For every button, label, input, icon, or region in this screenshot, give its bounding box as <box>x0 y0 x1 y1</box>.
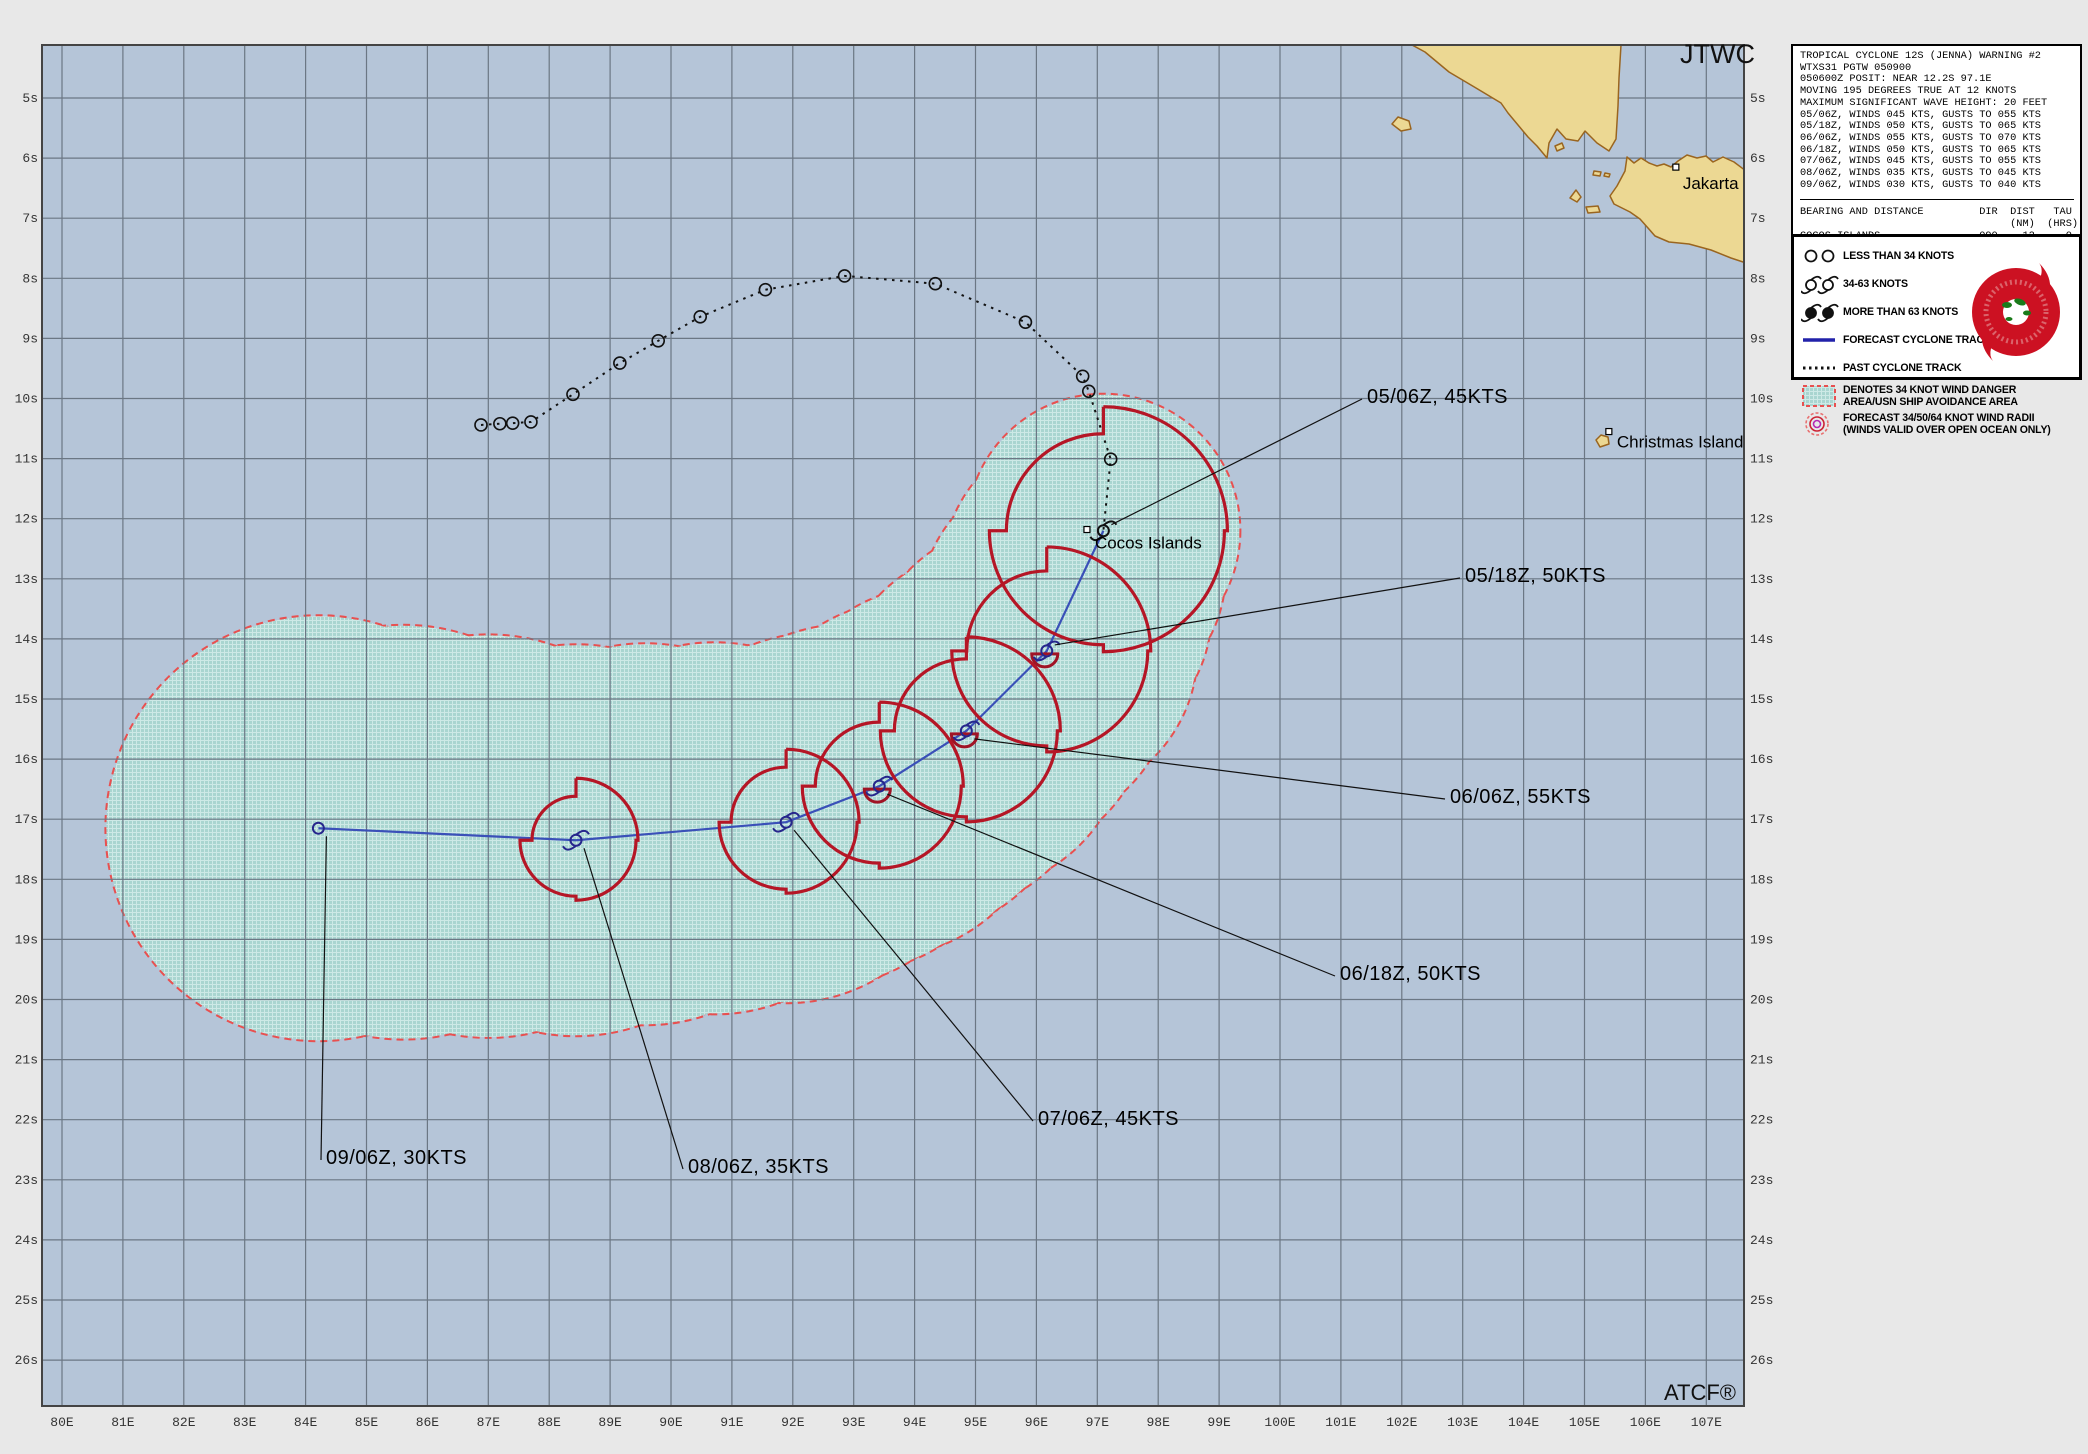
legend-label: LESS THAN 34 KNOTS <box>1843 250 1954 263</box>
lon-tick-label: 98E <box>1146 1415 1170 1430</box>
kt3463-icon <box>1801 271 1841 297</box>
forecast-point-label: 05/06Z, 45KTS <box>1367 386 1508 408</box>
legend-item: DENOTES 34 KNOT WIND DANGERAREA/USN SHIP… <box>1801 383 2075 409</box>
lon-tick-label: 101E <box>1325 1415 1356 1430</box>
lat-tick-label: 15s <box>1750 692 1773 707</box>
lon-tick-label: 91E <box>720 1415 744 1430</box>
lat-tick-label: 18s <box>1750 872 1773 887</box>
lat-tick-label: 10s <box>15 392 38 407</box>
lon-tick-label: 92E <box>781 1415 805 1430</box>
lat-tick-label: 22s <box>15 1113 38 1128</box>
lon-tick-label: 88E <box>537 1415 561 1430</box>
lon-tick-label: 89E <box>598 1415 622 1430</box>
atcf-footer: ATCF® <box>1664 1380 1736 1405</box>
lon-tick-label: 99E <box>1207 1415 1231 1430</box>
gt63-icon <box>1801 299 1841 325</box>
lat-tick-label: 13s <box>15 572 38 587</box>
legend-label: MORE THAN 63 KNOTS <box>1843 306 1958 319</box>
jtwc-logo <box>1957 253 2075 371</box>
place-label: Christmas Island <box>1617 433 1744 452</box>
lat-tick-label: 22s <box>1750 1113 1773 1128</box>
lat-tick-label: 17s <box>15 812 38 827</box>
legend-label: PAST CYCLONE TRACK <box>1843 362 1961 375</box>
lat-tick-label: 23s <box>15 1173 38 1188</box>
place-label: Jakarta <box>1683 174 1739 193</box>
legend-label: 34-63 KNOTS <box>1843 278 1908 291</box>
lon-tick-label: 102E <box>1386 1415 1417 1430</box>
legend-box: LESS THAN 34 KNOTS34-63 KNOTSMORE THAN 6… <box>1791 234 2082 380</box>
lat-tick-label: 6s <box>1750 151 1766 166</box>
lon-tick-label: 104E <box>1508 1415 1539 1430</box>
lat-tick-label: 11s <box>15 452 38 467</box>
lat-tick-label: 24s <box>15 1233 38 1248</box>
forecast-point-label: 05/18Z, 50KTS <box>1465 565 1606 587</box>
lon-tick-label: 80E <box>50 1415 74 1430</box>
lat-tick-label: 7s <box>1750 211 1766 226</box>
danger-swatch-icon <box>1801 383 1841 409</box>
lon-tick-label: 87E <box>477 1415 501 1430</box>
lon-tick-label: 82E <box>172 1415 196 1430</box>
forecast-point-label: 06/18Z, 50KTS <box>1340 963 1481 985</box>
warning-text: TROPICAL CYCLONE 12S (JENNA) WARNING #2W… <box>1800 51 2074 191</box>
lat-tick-label: 21s <box>15 1053 38 1068</box>
lon-tick-label: 83E <box>233 1415 257 1430</box>
lat-tick-label: 7s <box>22 211 38 226</box>
lon-tick-label: 96E <box>1025 1415 1049 1430</box>
lat-tick-label: 9s <box>1750 331 1766 346</box>
lon-tick-label: 106E <box>1630 1415 1661 1430</box>
legend-label: FORECAST 34/50/64 KNOT WIND RADII(WINDS … <box>1843 412 2051 437</box>
lon-tick-label: 90E <box>659 1415 683 1430</box>
map-canvas[interactable]: Cocos IslandsChristmas IslandJakarta 05/… <box>0 0 2088 1454</box>
fcst-track-icon <box>1801 327 1841 353</box>
lat-tick-label: 19s <box>1750 932 1773 947</box>
place-label: Cocos Islands <box>1095 534 1202 553</box>
lat-tick-label: 25s <box>15 1293 38 1308</box>
forecast-point-label: 07/06Z, 45KTS <box>1038 1108 1179 1130</box>
lat-tick-label: 11s <box>1750 452 1773 467</box>
forecast-point-label: 09/06Z, 30KTS <box>326 1147 467 1169</box>
lon-tick-label: 81E <box>111 1415 135 1430</box>
lat-tick-label: 14s <box>1750 632 1773 647</box>
lat-tick-label: 25s <box>1750 1293 1773 1308</box>
lon-tick-label: 94E <box>903 1415 927 1430</box>
lon-tick-label: 100E <box>1264 1415 1295 1430</box>
lt34-icon <box>1801 243 1841 269</box>
lon-tick-label: 105E <box>1569 1415 1600 1430</box>
forecast-point-label: 08/06Z, 35KTS <box>688 1156 829 1178</box>
lat-tick-label: 16s <box>15 752 38 767</box>
lat-tick-label: 8s <box>22 271 38 286</box>
lon-tick-label: 84E <box>294 1415 318 1430</box>
lon-tick-label: 85E <box>355 1415 379 1430</box>
warning-line: TROPICAL CYCLONE 12S (JENNA) WARNING #2 <box>1800 51 2074 63</box>
lat-tick-label: 18s <box>15 872 38 887</box>
legend-item: FORECAST 34/50/64 KNOT WIND RADII(WINDS … <box>1801 411 2075 437</box>
lat-tick-label: 10s <box>1750 392 1773 407</box>
lat-tick-label: 6s <box>22 151 38 166</box>
lat-tick-label: 15s <box>15 692 38 707</box>
legend-label: DENOTES 34 KNOT WIND DANGERAREA/USN SHIP… <box>1843 384 2018 409</box>
forecast-point-label: 06/06Z, 55KTS <box>1450 786 1591 808</box>
lat-tick-label: 12s <box>15 512 38 527</box>
lon-tick-label: 103E <box>1447 1415 1478 1430</box>
lat-tick-label: 14s <box>15 632 38 647</box>
lat-tick-label: 8s <box>1750 271 1766 286</box>
jtwc-title: JTWC <box>1680 39 1755 69</box>
lat-tick-label: 9s <box>22 331 38 346</box>
past-track-icon <box>1801 355 1841 381</box>
atcf-screen: Cocos IslandsChristmas IslandJakarta 05/… <box>0 0 2088 1454</box>
warning-info-box: TROPICAL CYCLONE 12S (JENNA) WARNING #2W… <box>1791 44 2082 249</box>
lat-tick-label: 23s <box>1750 1173 1773 1188</box>
lat-tick-label: 24s <box>1750 1233 1773 1248</box>
lat-tick-label: 20s <box>1750 993 1773 1008</box>
warning-line: 08/06Z, WINDS 035 KTS, GUSTS TO 045 KTS <box>1800 168 2074 180</box>
lon-tick-label: 97E <box>1086 1415 1110 1430</box>
lat-tick-label: 5s <box>1750 91 1766 106</box>
lon-tick-label: 93E <box>842 1415 866 1430</box>
lon-tick-label: 86E <box>416 1415 440 1430</box>
info-divider <box>1800 199 2074 200</box>
lat-tick-label: 5s <box>22 91 38 106</box>
lat-tick-label: 26s <box>15 1353 38 1368</box>
warning-line: 09/06Z, WINDS 030 KTS, GUSTS TO 040 KTS <box>1800 180 2074 192</box>
lat-tick-label: 12s <box>1750 512 1773 527</box>
lat-tick-label: 20s <box>15 993 38 1008</box>
warning-line: 06/06Z, WINDS 055 KTS, GUSTS TO 070 KTS <box>1800 133 2074 145</box>
lat-tick-label: 26s <box>1750 1353 1773 1368</box>
lat-tick-label: 13s <box>1750 572 1773 587</box>
lon-tick-label: 95E <box>964 1415 988 1430</box>
lon-tick-label: 107E <box>1691 1415 1722 1430</box>
lat-tick-label: 17s <box>1750 812 1773 827</box>
lat-tick-label: 16s <box>1750 752 1773 767</box>
lat-tick-label: 21s <box>1750 1053 1773 1068</box>
warning-line: MAXIMUM SIGNIFICANT WAVE HEIGHT: 20 FEET <box>1800 98 2074 110</box>
lat-tick-label: 19s <box>15 932 38 947</box>
wind-radii-icon <box>1801 411 1841 437</box>
